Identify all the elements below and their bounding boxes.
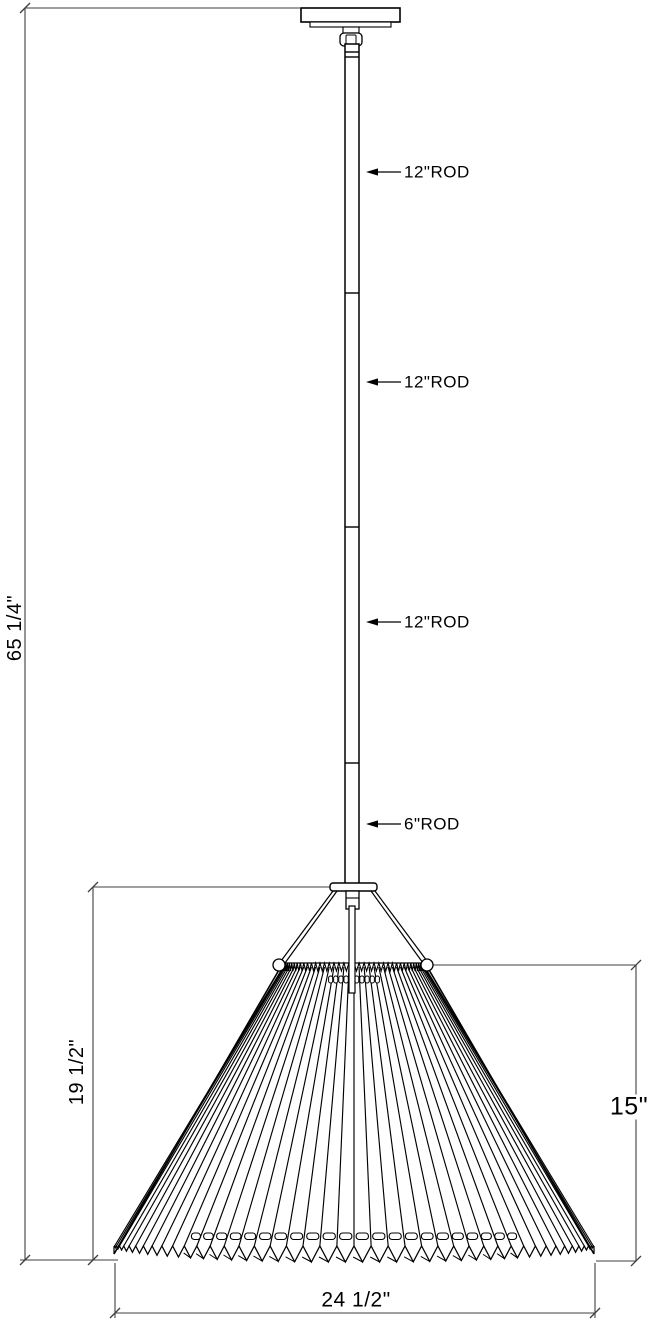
shade-height-dimension-label: 15"	[608, 1095, 650, 1120]
overall-height-dimension-label: 65 1/4"	[5, 595, 25, 661]
technical-drawing-canvas: 12"ROD 12"ROD 12"ROD 6"ROD 65 1/4" 19 1/…	[0, 0, 659, 1320]
shade-width-dimension-label: 24 1/2"	[321, 1290, 390, 1311]
rod-length-label-1: 12"ROD	[404, 164, 470, 181]
rod-length-label-2: 12"ROD	[404, 374, 470, 391]
rod-length-label-4: 6"ROD	[404, 816, 460, 833]
rod-label-leaders	[366, 168, 401, 827]
rod-length-label-3: 12"ROD	[404, 614, 470, 631]
fixture-hardware	[273, 8, 433, 993]
pleated-shade	[114, 963, 594, 1262]
shade-assembly-height-dimension-label: 19 1/2"	[67, 1039, 87, 1105]
pendant-fixture-drawing	[0, 0, 659, 1320]
